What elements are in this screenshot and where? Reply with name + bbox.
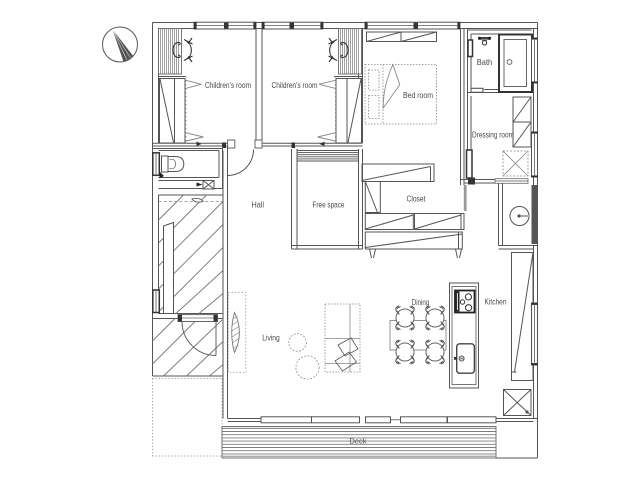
svg-text:Dressing room: Dressing room [472,131,514,140]
svg-text:Children's room: Children's room [272,81,318,90]
svg-text:Dining: Dining [412,298,430,307]
svg-text:Closet: Closet [407,195,427,204]
svg-text:Bed room: Bed room [403,91,433,100]
svg-text:Kitchen: Kitchen [485,298,507,307]
svg-text:Deck: Deck [350,437,367,446]
svg-text:Free space: Free space [313,201,345,210]
svg-text:Bath: Bath [477,58,493,67]
svg-text:Living: Living [262,334,280,343]
svg-text:Children's room: Children's room [205,81,251,90]
svg-text:Hall: Hall [252,201,265,210]
